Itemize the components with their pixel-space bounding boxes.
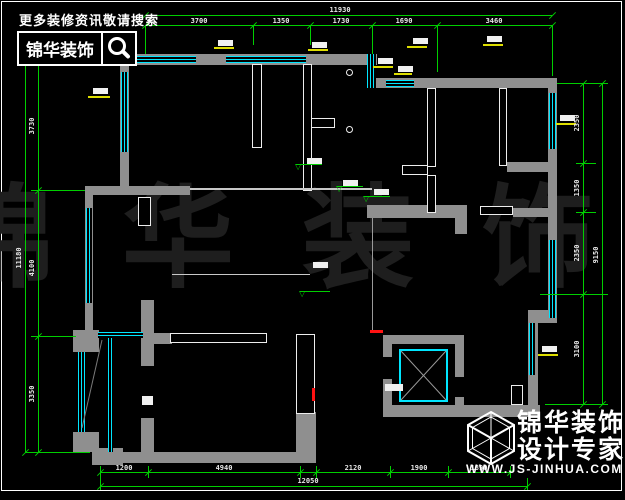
window [386,80,414,87]
level-marker-triangle: ▽ [299,290,305,298]
website-url: WWW.JS-JINHUA.COM [466,462,623,476]
partition-wall [252,64,262,148]
dimension-label: 1900 [411,464,428,472]
wall-label [93,88,108,94]
label-leader [373,66,393,68]
window [98,332,143,338]
wall-label [385,384,403,391]
wall-segment [507,162,548,172]
dimension-label: 1200 [116,464,133,472]
window [367,54,376,88]
magnifier-handle [120,49,131,60]
label-leader [483,44,503,46]
partition-wall [138,197,151,226]
red-threshold-mark [370,330,383,333]
dimension-label: 1730 [333,17,350,25]
partition-wall [427,88,436,167]
label-leader [214,47,234,49]
dimension-label: 2350 [573,115,581,132]
dimension-label: 11930 [329,6,350,14]
fixture-mark [346,126,353,133]
wall-segment [367,205,467,218]
footer-brand-line2: 设计专家 [517,437,625,464]
dimension-line [25,62,26,452]
dimension-line [145,15,552,16]
dimension-label: 1350 [573,180,581,197]
window [121,72,128,152]
wall-label [542,346,557,352]
label-leader [407,46,427,48]
wall-label [413,38,428,44]
wall-line [372,218,373,332]
hexagon-cube-logo-icon [464,410,518,466]
wall-segment [296,412,316,463]
label-leader [394,73,412,75]
search-tagline: 更多装修资讯敬请搜索 [19,10,159,29]
label-leader [88,96,110,98]
dimension-label: 1690 [396,17,413,25]
partition-wall [170,333,267,343]
label-leader [308,49,328,51]
level-marker-triangle: ▽ [295,163,301,171]
window [108,338,113,452]
dimension-label: 9150 [592,247,600,264]
wall-label [374,189,389,195]
window [529,323,535,375]
window [549,240,556,318]
level-marker-triangle: ▽ [363,195,369,203]
dimension-label: 3350 [28,386,36,403]
label-leader [538,354,558,356]
wall-segment [455,218,467,234]
dimension-label: 12050 [297,477,318,485]
dimension-label: 2350 [573,245,581,262]
footer-brand-text: 锦华装饰 设计专家 [517,410,625,464]
dimension-line [145,25,552,26]
dimension-label: 3700 [191,17,208,25]
wall-segment [85,186,190,195]
footer-brand-line1: 锦华装饰 [517,410,625,437]
elevator-wall [455,335,464,414]
elevator-x-mark [399,349,448,402]
partition-wall [499,88,507,166]
brand-search-box: 锦华装饰 [17,31,137,66]
dimension-line [602,83,603,404]
dimension-line [100,486,527,487]
dimension-label: 1350 [273,17,290,25]
partition-wall [480,206,513,215]
wall-label [398,66,413,72]
dimension-line [38,62,39,452]
wall-label [378,58,393,64]
window [86,208,92,303]
window [226,56,306,63]
wall-line [190,188,372,190]
window [549,93,556,149]
dimension-label: 2120 [345,464,362,472]
partition-wall [402,165,428,175]
partition-wall [427,175,436,213]
bay-diagonal-line [78,336,104,432]
dimension-label: 3730 [28,118,36,135]
partition-wall [311,118,335,128]
dimension-label: 3100 [573,341,581,358]
wall-segment [141,418,154,452]
dimension-line [583,83,584,404]
partition-wall [296,334,315,414]
dimension-label: 3460 [486,17,503,25]
door-opening [455,377,464,397]
wall-label [313,262,328,268]
search-icon [103,33,135,64]
dimension-label: 4100 [28,260,36,277]
floor-plan-image: 锦华装饰 [0,0,625,500]
door-leaf [142,396,153,405]
red-threshold-mark [312,388,315,401]
elevator-wall [383,335,464,344]
wall-line [172,274,310,275]
wall-label [312,42,327,48]
level-marker-triangle: ▽ [336,185,342,193]
dimension-label: 11180 [15,247,23,268]
wall-segment [92,452,305,463]
dimension-label: 4940 [216,464,233,472]
door-leaf [511,385,523,405]
wall-label [218,40,233,46]
window [136,56,196,63]
center-watermark: 锦华装饰 [0,183,625,295]
wall-label [487,36,502,42]
fixture-mark [346,69,353,76]
brand-name: 锦华装饰 [19,33,101,64]
door-opening [383,357,392,379]
